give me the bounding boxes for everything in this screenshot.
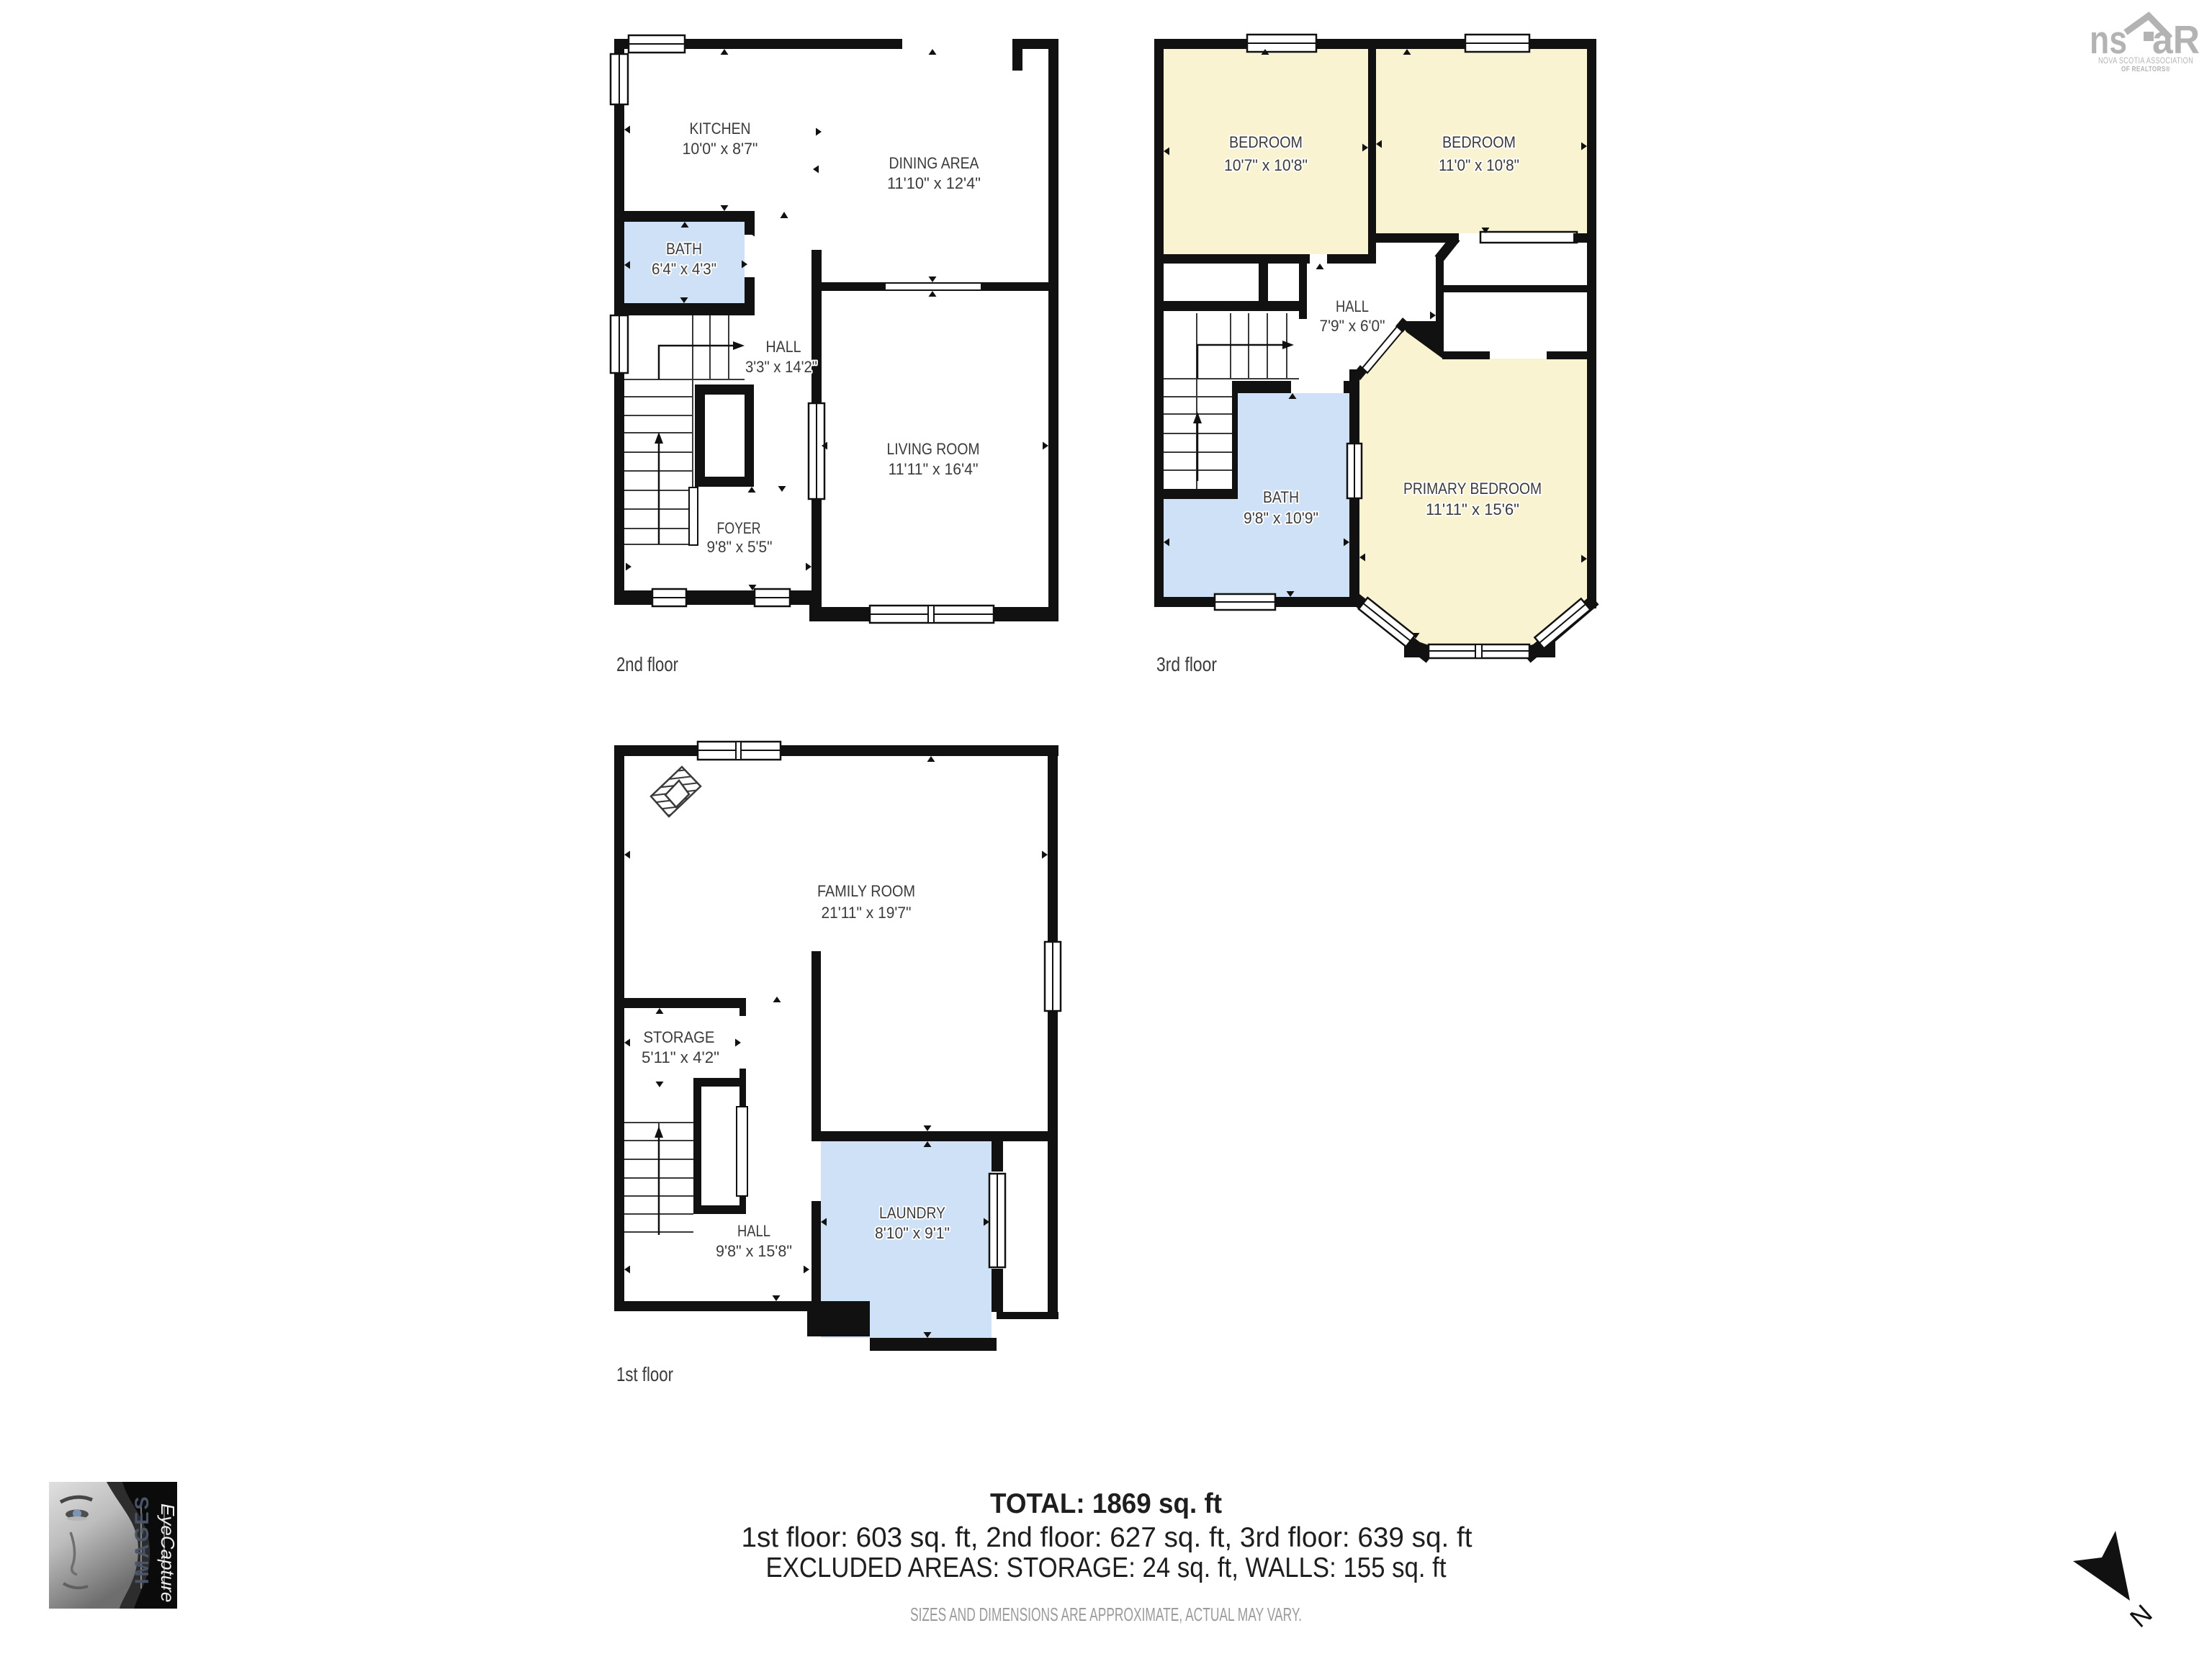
svg-text:KITCHEN: KITCHEN <box>690 120 751 138</box>
svg-text:9'8" x 15'8": 9'8" x 15'8" <box>716 1242 792 1260</box>
svg-text:BATH: BATH <box>666 240 702 258</box>
svg-text:11'10" x 12'4": 11'10" x 12'4" <box>887 174 981 192</box>
svg-text:11'11" x 15'6": 11'11" x 15'6" <box>1426 500 1519 518</box>
svg-text:1st floor: 603 sq. ft, 2nd flo: 1st floor: 603 sq. ft, 2nd floor: 627 sq… <box>742 1522 1473 1553</box>
svg-text:10'0" x 8'7": 10'0" x 8'7" <box>683 140 758 158</box>
svg-text:3'3" x 14'2": 3'3" x 14'2" <box>745 358 817 376</box>
svg-text:11'11" x 16'4": 11'11" x 16'4" <box>889 460 979 478</box>
svg-text:5'11" x 4'2": 5'11" x 4'2" <box>642 1048 719 1066</box>
svg-text:STORAGE: STORAGE <box>644 1028 715 1046</box>
svg-text:21'11" x 19'7": 21'11" x 19'7" <box>822 904 912 922</box>
svg-text:DINING AREA: DINING AREA <box>889 154 979 172</box>
svg-text:1st floor: 1st floor <box>616 1363 673 1385</box>
svg-text:PRIMARY BEDROOM: PRIMARY BEDROOM <box>1403 480 1542 498</box>
svg-text:FOYER: FOYER <box>717 519 761 537</box>
svg-text:8'10" x 9'1": 8'10" x 9'1" <box>875 1224 950 1242</box>
svg-text:9'8" x 10'9": 9'8" x 10'9" <box>1244 509 1318 527</box>
svg-text:SIZES AND DIMENSIONS ARE APPRO: SIZES AND DIMENSIONS ARE APPROXIMATE, AC… <box>910 1604 1302 1625</box>
svg-text:9'8" x 5'5": 9'8" x 5'5" <box>707 538 773 556</box>
svg-text:IMAGES: IMAGES <box>131 1494 153 1584</box>
svg-text:N: N <box>2124 1599 2158 1633</box>
svg-text:HALL: HALL <box>1336 297 1369 315</box>
svg-text:6'4" x 4'3": 6'4" x 4'3" <box>652 260 716 278</box>
svg-text:2nd floor: 2nd floor <box>616 653 678 675</box>
svg-text:LAUNDRY: LAUNDRY <box>879 1204 945 1222</box>
svg-text:EXCLUDED AREAS: STORAGE: 24 sq: EXCLUDED AREAS: STORAGE: 24 sq. ft, WALL… <box>766 1552 1447 1583</box>
svg-text:BEDROOM: BEDROOM <box>1229 133 1303 151</box>
svg-text:3rd floor: 3rd floor <box>1156 653 1217 675</box>
svg-text:HALL: HALL <box>766 338 801 356</box>
svg-text:BEDROOM: BEDROOM <box>1442 133 1516 151</box>
svg-text:NOVA SCOTIA ASSOCIATION: NOVA SCOTIA ASSOCIATION <box>2098 55 2193 66</box>
svg-text:FAMILY ROOM: FAMILY ROOM <box>817 882 915 900</box>
svg-text:10'7" x 10'8": 10'7" x 10'8" <box>1224 156 1308 174</box>
svg-text:11'0" x 10'8": 11'0" x 10'8" <box>1439 156 1519 174</box>
svg-text:EyeCapture: EyeCapture <box>157 1503 179 1602</box>
svg-text:BATH: BATH <box>1263 488 1299 506</box>
svg-text:LIVING ROOM: LIVING ROOM <box>887 440 980 458</box>
svg-text:HALL: HALL <box>737 1222 770 1240</box>
svg-text:TOTAL: 1869 sq. ft: TOTAL: 1869 sq. ft <box>990 1488 1222 1519</box>
svg-text:7'9" x 6'0": 7'9" x 6'0" <box>1320 317 1385 335</box>
svg-text:OF REALTORS®: OF REALTORS® <box>2121 65 2170 73</box>
